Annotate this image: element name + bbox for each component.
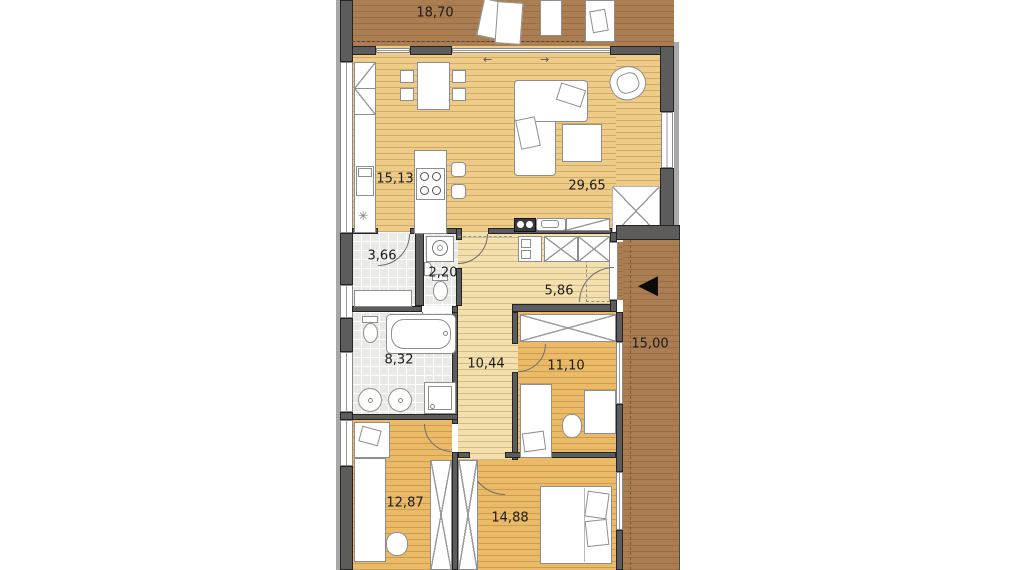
counter-sink-basin [541,220,559,228]
low-cabinet [566,218,610,231]
wall-left-5 [340,466,353,570]
porch-roof-dashed [630,240,631,570]
wall-east-2 [616,404,623,472]
wall-east-1 [616,312,623,342]
wall-left-2 [340,233,353,285]
wall-corridor-right-1 [512,312,518,344]
burner [420,186,429,195]
wall-pantry-wc [415,232,424,306]
toilet-tank [362,316,378,323]
fridge-top [358,168,372,177]
bay-window [661,112,673,168]
bedroom3-area-label: 14,88 [491,511,528,526]
wall-bay-bottom [616,225,680,240]
washer-dryer-door [521,239,531,248]
bedroom3-pillow [584,491,609,520]
toilet-bowl [433,281,448,301]
kitchen-area-label: 15,13 [376,172,413,187]
wall-bathroom-bottom [352,414,458,420]
bedroom2-chair [386,532,408,556]
sun-lounger [495,1,524,45]
kitchen-tall-cabinet [354,62,376,89]
wall-terrace-2 [410,46,452,55]
dining-chair [400,70,414,83]
pantry-shelf [354,290,412,307]
porch-right-edge [679,240,680,570]
entrance-arrow-icon: ◀ [638,272,658,298]
hall-area-label: 5,86 [545,284,574,299]
bedroom2-window [340,420,353,466]
pantry-window [340,285,353,318]
floor-plan: ← → [0,0,1011,570]
coffee-table [562,124,602,162]
slide-left-arrow-icon: ← [483,54,492,65]
bedroom3-wardrobe [458,460,478,570]
bedroom3-window [616,472,623,530]
bedroom1-window [616,342,623,404]
wall-hall-bedroom1 [512,304,616,312]
basin-drain [368,398,373,403]
bedroom2-wardrobe [430,460,452,570]
bedroom3-pillow [585,519,610,547]
bedroom1-chair [562,414,582,438]
terrace-table [540,0,562,36]
bedroom2-bed [354,458,386,562]
burner [432,172,441,181]
wall-terrace-1 [352,46,376,55]
basin-drain [398,398,403,403]
terrace-glazing [376,48,410,53]
wall-corridor-right-2 [512,372,518,460]
washer-dryer-door [521,250,531,259]
hall-wardrobe [578,236,610,262]
wall-bedroom3-top-1 [458,452,470,458]
bathroom-area-label: 8,32 [385,353,414,368]
bedroom1-pillow [522,431,546,453]
washer-drum-inner [437,245,443,251]
kitchen-window [340,62,353,233]
corridor-floor [458,232,518,460]
wall-east-3 [616,530,623,570]
burner [432,186,441,195]
bedroom1-area-label: 11,10 [547,359,584,374]
bar-stool [451,184,466,199]
shower-drain [430,404,435,409]
bathtub-drain [443,331,448,336]
corridor-area-label: 10,44 [467,357,504,372]
bedroom1-wardrobe [520,314,616,342]
slide-right-arrow-icon: → [540,54,549,65]
hob-ring [526,221,533,228]
wall-bay-right-1 [660,46,674,112]
kitchen-tall-cabinet [354,88,376,115]
sliding-door-glazing [452,48,616,53]
outer-wall-band-bay [674,42,679,240]
dining-chair [452,88,466,101]
corridor-threshold-dashed [458,236,512,238]
bathtub-inner [391,319,451,349]
bathroom-window [340,352,353,412]
wall-entry-top [610,232,617,242]
bedroom2-area-label: 12,87 [386,496,423,511]
wall-left-3 [340,318,353,352]
bar-stool [451,162,466,177]
hob-ring [517,221,524,228]
terrace-edge-dashed [352,41,614,43]
wc-area-label: 2,20 [429,266,458,281]
burner [420,172,429,181]
toilet-bowl [363,323,378,343]
porch-area-label: 15,00 [631,337,668,352]
kitchen-sink-icon: ✳ [358,210,368,222]
dining-chair [400,88,414,101]
dining-table [417,62,450,110]
bedroom1-desk [584,390,616,434]
living-area-label: 29,65 [568,179,605,194]
terrace-area-label: 18,70 [416,6,453,21]
pantry-area-label: 3,66 [368,249,397,264]
hall-wardrobe [544,236,578,262]
dining-chair [452,70,466,83]
